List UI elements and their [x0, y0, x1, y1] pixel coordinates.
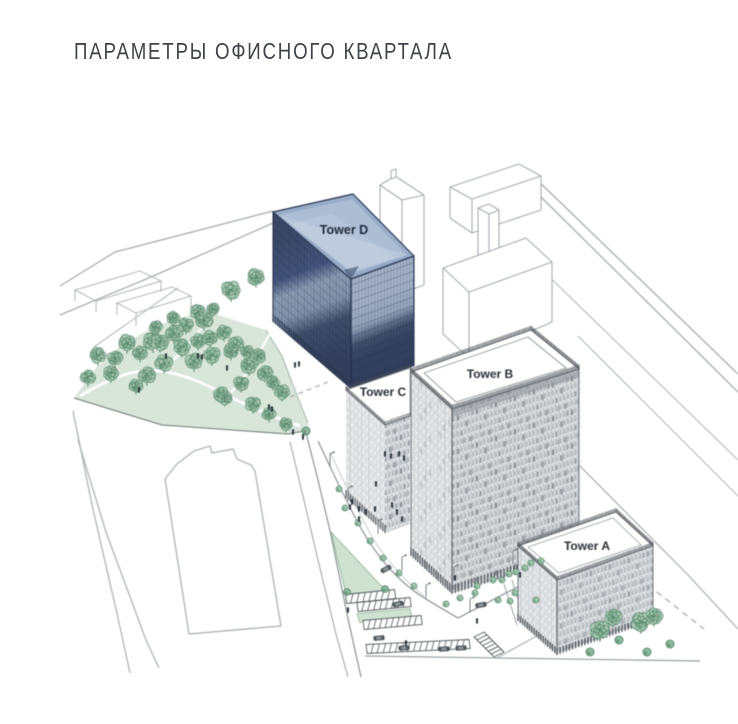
svg-text:Tower A: Tower A	[564, 539, 610, 553]
svg-text:Tower D: Tower D	[320, 223, 368, 237]
svg-text:Tower C: Tower C	[360, 385, 407, 399]
svg-text:Tower B: Tower B	[467, 367, 514, 381]
